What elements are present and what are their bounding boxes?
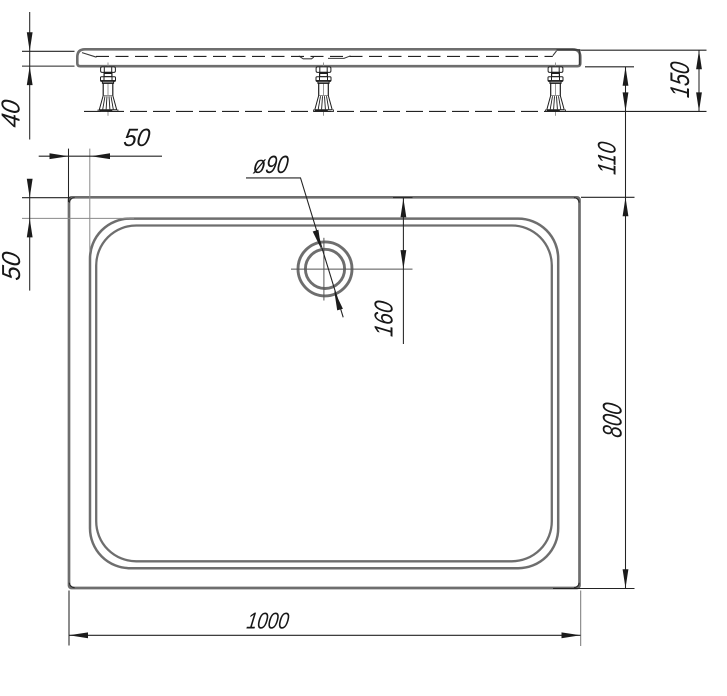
- svg-text:1000: 1000: [245, 607, 291, 633]
- svg-text:150: 150: [665, 60, 695, 99]
- svg-text:110: 110: [594, 140, 622, 176]
- svg-text:160: 160: [369, 298, 399, 338]
- svg-text:50: 50: [0, 249, 26, 282]
- svg-text:ø90: ø90: [251, 151, 290, 179]
- svg-text:800: 800: [598, 401, 628, 439]
- svg-text:40: 40: [0, 97, 26, 129]
- svg-text:50: 50: [122, 124, 152, 152]
